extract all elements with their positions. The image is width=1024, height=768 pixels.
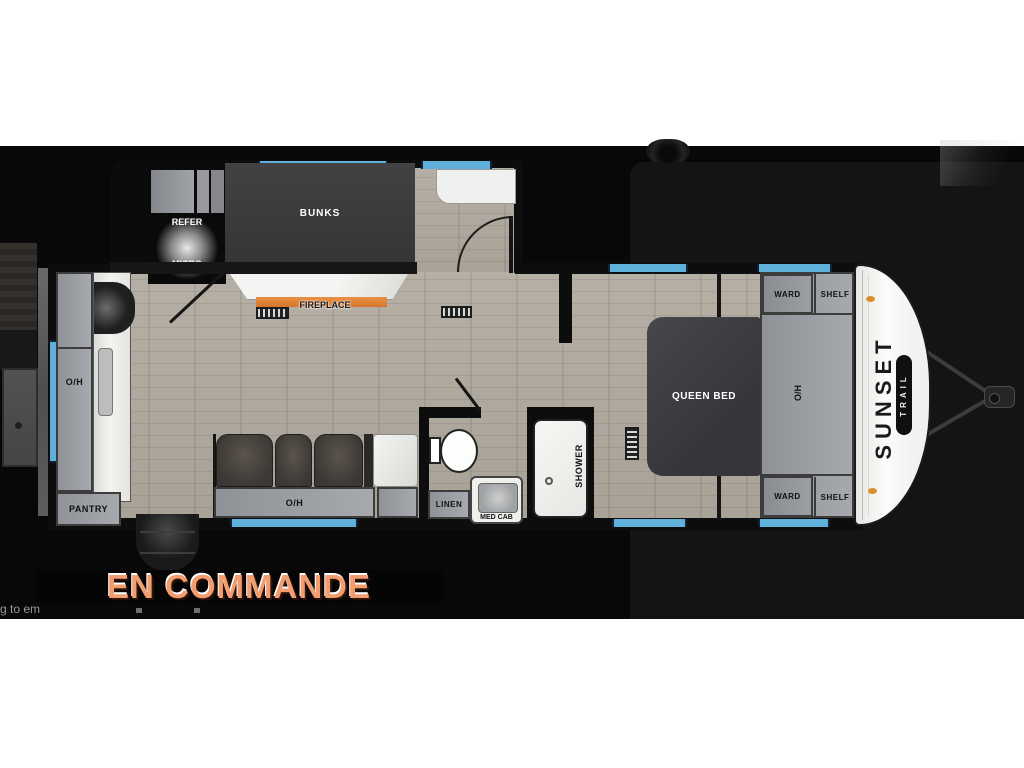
overhead-label-front: O/H xyxy=(793,365,803,421)
cap-trim-line xyxy=(862,270,863,520)
sofa-cushion xyxy=(216,434,273,487)
sofa-cushion xyxy=(314,434,363,487)
shelf-label: SHELF xyxy=(821,290,850,299)
exterior-storage-door xyxy=(2,368,38,467)
cabinet-shelf xyxy=(211,170,224,213)
cabinet-small xyxy=(377,487,418,518)
shower-drain-icon xyxy=(545,477,553,485)
sofa-end-bedding xyxy=(373,434,418,487)
floor-vent xyxy=(625,427,639,460)
wardrobe-top: WARD xyxy=(762,274,813,314)
bunks-label: BUNKS xyxy=(300,208,341,219)
backdrop-light-streaks xyxy=(940,140,1024,186)
shelf-top: SHELF xyxy=(814,274,854,314)
status-banner: EN COMMANDE xyxy=(35,570,443,603)
shower-enclosure: SHOWER xyxy=(527,407,594,524)
linen-label: LINEN xyxy=(436,500,463,509)
shelf-label: SHELF xyxy=(821,493,850,502)
linen-cabinet: LINEN xyxy=(428,490,470,519)
bath-vanity: MED CAB xyxy=(470,476,523,524)
partition-wall xyxy=(559,272,572,343)
window-strip xyxy=(230,519,358,527)
queen-bed-label: QUEEN BED xyxy=(672,391,736,402)
hitch-coupler xyxy=(984,386,1015,408)
bath-sink xyxy=(478,483,518,513)
status-banner-label: EN COMMANDE xyxy=(107,568,371,606)
marker-light-icon xyxy=(866,296,875,302)
toilet-bowl xyxy=(440,429,478,473)
door-knob-icon xyxy=(15,422,22,429)
window-strip xyxy=(757,264,832,272)
entry-steps xyxy=(136,514,199,571)
shower-pan: SHOWER xyxy=(533,419,588,518)
cutoff-caption-text: g to em xyxy=(0,602,60,618)
pantry: PANTRY xyxy=(56,492,121,526)
ward-label: WARD xyxy=(774,492,800,501)
cabinet-shelf xyxy=(197,170,209,213)
kitchen-sink xyxy=(98,348,113,416)
shelf-bottom: SHELF xyxy=(814,477,854,517)
cap-trim-line xyxy=(868,274,869,516)
bedroom-stub-bottom xyxy=(717,475,721,520)
wardrobe-bottom: WARD xyxy=(762,476,813,517)
exterior-shadow-block xyxy=(0,330,37,370)
exterior-wood-texture xyxy=(0,243,37,333)
ward-label: WARD xyxy=(774,290,800,299)
refer-label: REFER xyxy=(148,217,226,227)
cabinet-shelf xyxy=(151,170,194,213)
floor-vent xyxy=(441,306,472,318)
bedroom-stub-top xyxy=(717,272,721,317)
shower-label: SHOWER xyxy=(574,436,584,496)
brand-model-label: SUNSET xyxy=(871,305,897,489)
bunkroom-bedding xyxy=(436,169,516,204)
bunkroom-door-panel xyxy=(509,216,513,273)
rear-bumper xyxy=(38,268,48,516)
sofa-armrest xyxy=(364,434,373,487)
floor-vent xyxy=(256,307,289,319)
bunks: BUNKS xyxy=(225,163,415,264)
bunk-front-rail xyxy=(110,262,417,274)
med-cab-label: MED CAB xyxy=(472,514,521,521)
queen-bed: QUEEN BED xyxy=(647,317,761,476)
step-line xyxy=(140,531,195,533)
step-line xyxy=(140,552,195,554)
overhead-cabinet-sofa: O/H xyxy=(214,487,375,518)
window-strip xyxy=(608,264,688,272)
sofa-cushion xyxy=(275,434,312,487)
step-mark xyxy=(136,608,142,613)
cooktop-stove xyxy=(94,282,135,334)
backdrop-circle-shape xyxy=(646,139,690,164)
pantry-label: PANTRY xyxy=(69,504,108,514)
window-strip xyxy=(421,161,492,169)
step-mark xyxy=(194,608,200,613)
overhead-cabinet-left: O/H xyxy=(56,272,93,492)
window-strip xyxy=(612,519,687,527)
brand-sub-badge: TRAIL xyxy=(896,355,912,435)
overhead-label: O/H xyxy=(286,498,304,508)
overhead-label: O/H xyxy=(66,377,84,387)
coupler-socket-icon xyxy=(989,393,1000,404)
screenshot-stage: REFER MICRO BUNKS FIREPLACE O/H PANTRY O… xyxy=(0,0,1024,768)
cabinet-divider xyxy=(56,347,93,349)
window-strip xyxy=(758,519,830,527)
